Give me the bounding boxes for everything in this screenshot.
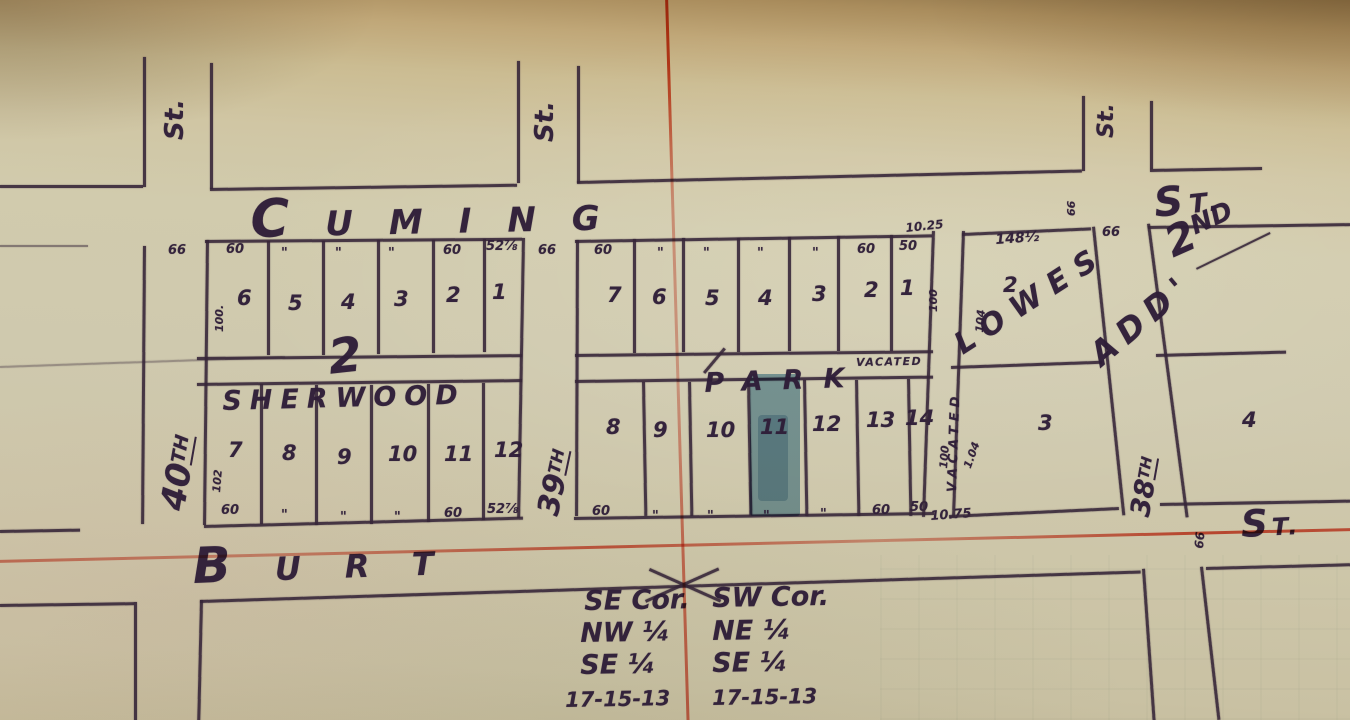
vacated-width-dim: 10.25	[905, 218, 944, 234]
corner-note-line: NW ¼	[580, 618, 670, 647]
street-40th-label: 40TH	[156, 432, 203, 512]
street-edge-line	[1200, 567, 1220, 720]
lot-number: 4	[1242, 410, 1257, 431]
lot-divider-line	[483, 239, 486, 352]
lot-divider-line	[688, 382, 693, 516]
lot-number: 2	[864, 280, 879, 301]
lot-divider-line	[890, 235, 893, 351]
corner-note-line: SW Cor.	[712, 583, 829, 612]
cuming-south-line	[0, 245, 88, 247]
alley-line	[951, 361, 1102, 369]
lot-dim: "	[757, 247, 764, 260]
burt-street-label: BURT	[192, 532, 478, 592]
lot-dim: "	[820, 508, 827, 521]
lot-dim: "	[281, 509, 288, 522]
lot-dim: "	[657, 247, 664, 260]
lot-number: 8	[606, 417, 621, 438]
block-edge-line	[1206, 563, 1350, 570]
lot-number: 7	[607, 285, 622, 306]
block-edge-line	[575, 240, 579, 516]
lot-dim: 52⅞	[486, 240, 518, 253]
lot-dim: 60	[592, 505, 610, 518]
subdivision-park-label: PARK	[704, 364, 865, 397]
lot-dim: 60	[443, 244, 461, 257]
lot-number: 3	[394, 289, 409, 310]
street-38th-label: 38TH	[1127, 455, 1164, 519]
lot-number: 5	[705, 288, 720, 309]
lot-dim: "	[763, 510, 770, 523]
lot-number: 5	[288, 293, 303, 314]
street-stub-line	[210, 63, 213, 189]
lot-dim: "	[335, 247, 342, 260]
street-stub-label: St.	[162, 99, 188, 140]
lot-dim: 60	[872, 504, 890, 517]
lot-divider-line	[788, 237, 791, 351]
vacated-alley-label: VACATED	[856, 356, 922, 368]
lot-dim: 60	[594, 244, 612, 257]
lot-number: 13	[866, 410, 895, 431]
street-stub-label: St.	[532, 101, 558, 142]
corner-note-line: NE ¼	[712, 617, 791, 645]
lot-dim: "	[340, 511, 347, 524]
lot-number: 9	[653, 420, 668, 441]
lot-divider-line	[322, 241, 325, 355]
lot-dim: "	[707, 510, 714, 523]
street-edge-line	[141, 246, 146, 524]
lot-number: 4	[758, 288, 773, 309]
ghost-grid-texture	[880, 555, 1350, 720]
street-edge-line	[1142, 569, 1156, 720]
block-number: 2	[326, 331, 364, 382]
lot-number: 11	[760, 417, 789, 438]
lot-divider-line	[682, 238, 685, 352]
lot-dim: 52⅞	[487, 503, 519, 516]
lot-divider-line	[267, 241, 270, 355]
lot-dim: 60	[857, 243, 875, 256]
lot-number: 1	[900, 278, 915, 299]
lot-number: 12	[812, 414, 841, 435]
lot-number: 6	[237, 288, 252, 309]
lot-dim: "	[812, 247, 819, 260]
lot-dim: "	[394, 511, 401, 524]
lot-divider-line	[803, 380, 808, 516]
corner-note-line: SE ¼	[580, 651, 656, 679]
street-edge-line	[197, 600, 203, 720]
lot-divider-line	[377, 240, 380, 354]
street-width-dim: 66	[1102, 226, 1120, 239]
cuming-north-line	[0, 185, 143, 188]
cuming-north-line	[1150, 167, 1262, 172]
block-edge-line	[1156, 351, 1286, 357]
lot-number: 14	[905, 408, 934, 429]
lot-number: 3	[812, 284, 827, 305]
lot-dim: "	[652, 510, 659, 523]
lot-number: 10	[388, 444, 417, 465]
burt-north-line	[0, 529, 80, 533]
lot-number: 4	[341, 292, 356, 313]
lot-number: 7	[228, 440, 243, 461]
block-edge-line	[517, 238, 525, 518]
lot-number: 2	[446, 285, 461, 306]
lot-depth-dim: 1.04	[962, 440, 982, 469]
lot-divider-line	[642, 382, 647, 516]
block-edge-line	[0, 602, 134, 607]
street-stub-line	[577, 66, 580, 183]
corner-note-line: SE Cor.	[584, 586, 690, 615]
lot-divider-line	[737, 238, 740, 352]
block-edge-line	[949, 507, 1119, 518]
lot-number: 9	[337, 447, 352, 468]
lot-divider-line	[633, 239, 636, 353]
lot-number: 12	[494, 440, 523, 461]
lot-divider-line	[432, 240, 435, 353]
lot-dim: "	[388, 247, 395, 260]
lot-divider-line	[855, 380, 860, 516]
lot-depth-dim: 100.	[214, 305, 225, 332]
lot-dim: 50	[899, 240, 917, 253]
vacated-strip-label: VACATED	[946, 391, 963, 492]
lot-divider-line	[907, 379, 912, 516]
vacated-strip-line	[922, 231, 935, 517]
lot-dim: "	[281, 247, 288, 260]
street-edge-line	[134, 602, 137, 720]
corner-note-line: SE ¼	[712, 649, 788, 677]
plat-map-photo: St. St. St. CUMING ST. 66 66 66 66 66 40…	[0, 0, 1350, 720]
street-stub-line	[1082, 96, 1085, 171]
lot-dim: 60	[444, 507, 462, 520]
street-width-dim: 66	[168, 244, 186, 257]
lot-number: 1	[492, 282, 507, 303]
street-stub-label: St.	[1096, 103, 1118, 138]
lot-number: 11	[444, 444, 473, 465]
lot-dim: 60	[226, 243, 244, 256]
lot-divider-line	[837, 236, 840, 351]
lot-dim: 148½	[995, 230, 1040, 247]
street-width-dim: 66	[1066, 201, 1077, 216]
street-39th-label: 39TH	[534, 447, 577, 519]
lot-number: 10	[706, 420, 735, 441]
lot-dim: 60	[221, 504, 239, 517]
lot-number: 6	[652, 287, 667, 308]
lot-depth-dim: 102	[211, 469, 224, 493]
street-stub-line	[517, 61, 520, 183]
block-edge-line	[204, 517, 523, 528]
lot-number: 8	[282, 443, 297, 464]
corner-note-line: 17-15-13	[712, 686, 817, 709]
burt-st-suffix: ST.	[1240, 503, 1302, 543]
subdivision-sherwood-label: SHERWOOD	[222, 382, 466, 415]
lot-depth-dim: 100	[928, 289, 939, 312]
lot-divider-line	[482, 383, 485, 520]
street-stub-line	[1150, 101, 1153, 169]
corner-note-line: 17-15-13	[565, 688, 670, 711]
lot-dim: "	[703, 247, 710, 260]
street-stub-line	[143, 57, 146, 187]
lot-number: 3	[1038, 413, 1053, 434]
street-width-dim: 66	[538, 244, 556, 257]
cuming-north-line	[577, 170, 1082, 184]
